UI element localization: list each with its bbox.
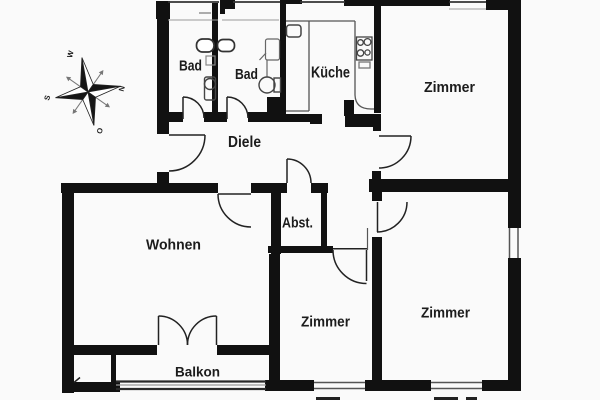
svg-text:Zimmer: Zimmer [421, 305, 470, 322]
svg-text:Bad: Bad [235, 66, 258, 83]
svg-text:Wohnen: Wohnen [146, 237, 201, 254]
svg-text:Zimmer: Zimmer [301, 314, 350, 331]
svg-text:Balkon: Balkon [175, 364, 220, 380]
svg-text:Diele: Diele [228, 134, 261, 151]
svg-text:Zimmer: Zimmer [424, 79, 475, 96]
svg-text:Abst.: Abst. [282, 215, 313, 232]
svg-text:Bad: Bad [179, 58, 202, 75]
svg-text:Küche: Küche [311, 65, 350, 82]
